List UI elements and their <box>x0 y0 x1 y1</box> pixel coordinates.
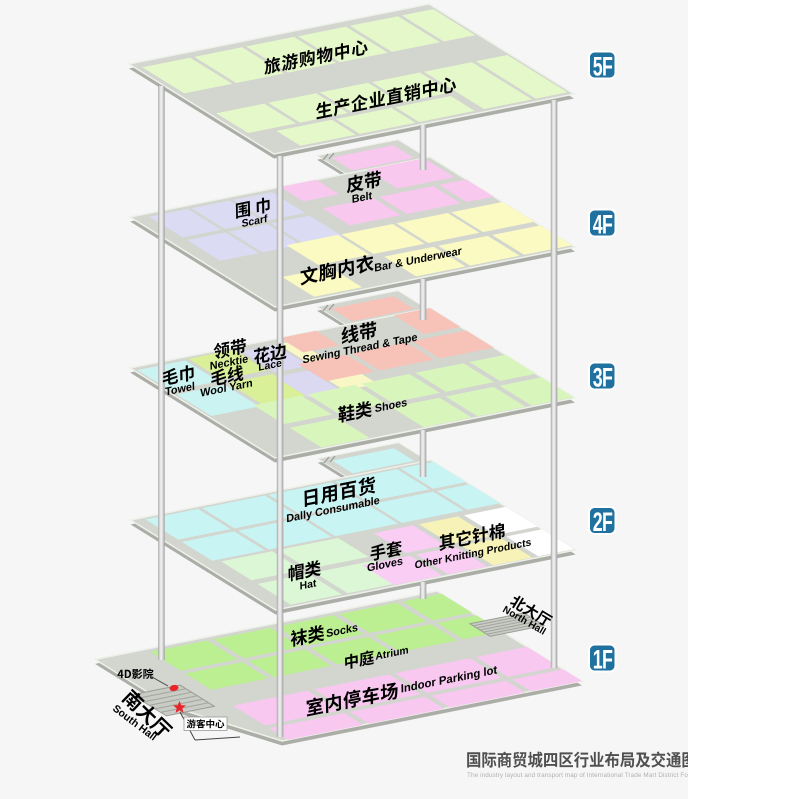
svg-text:1F: 1F <box>593 644 613 675</box>
svg-text:The industry layout and transp: The industry layout and transport map of… <box>467 772 694 779</box>
svg-text:2F: 2F <box>593 506 613 537</box>
svg-text:5F: 5F <box>593 51 613 82</box>
svg-text:4F: 4F <box>593 209 613 240</box>
svg-text:3F: 3F <box>593 362 613 393</box>
